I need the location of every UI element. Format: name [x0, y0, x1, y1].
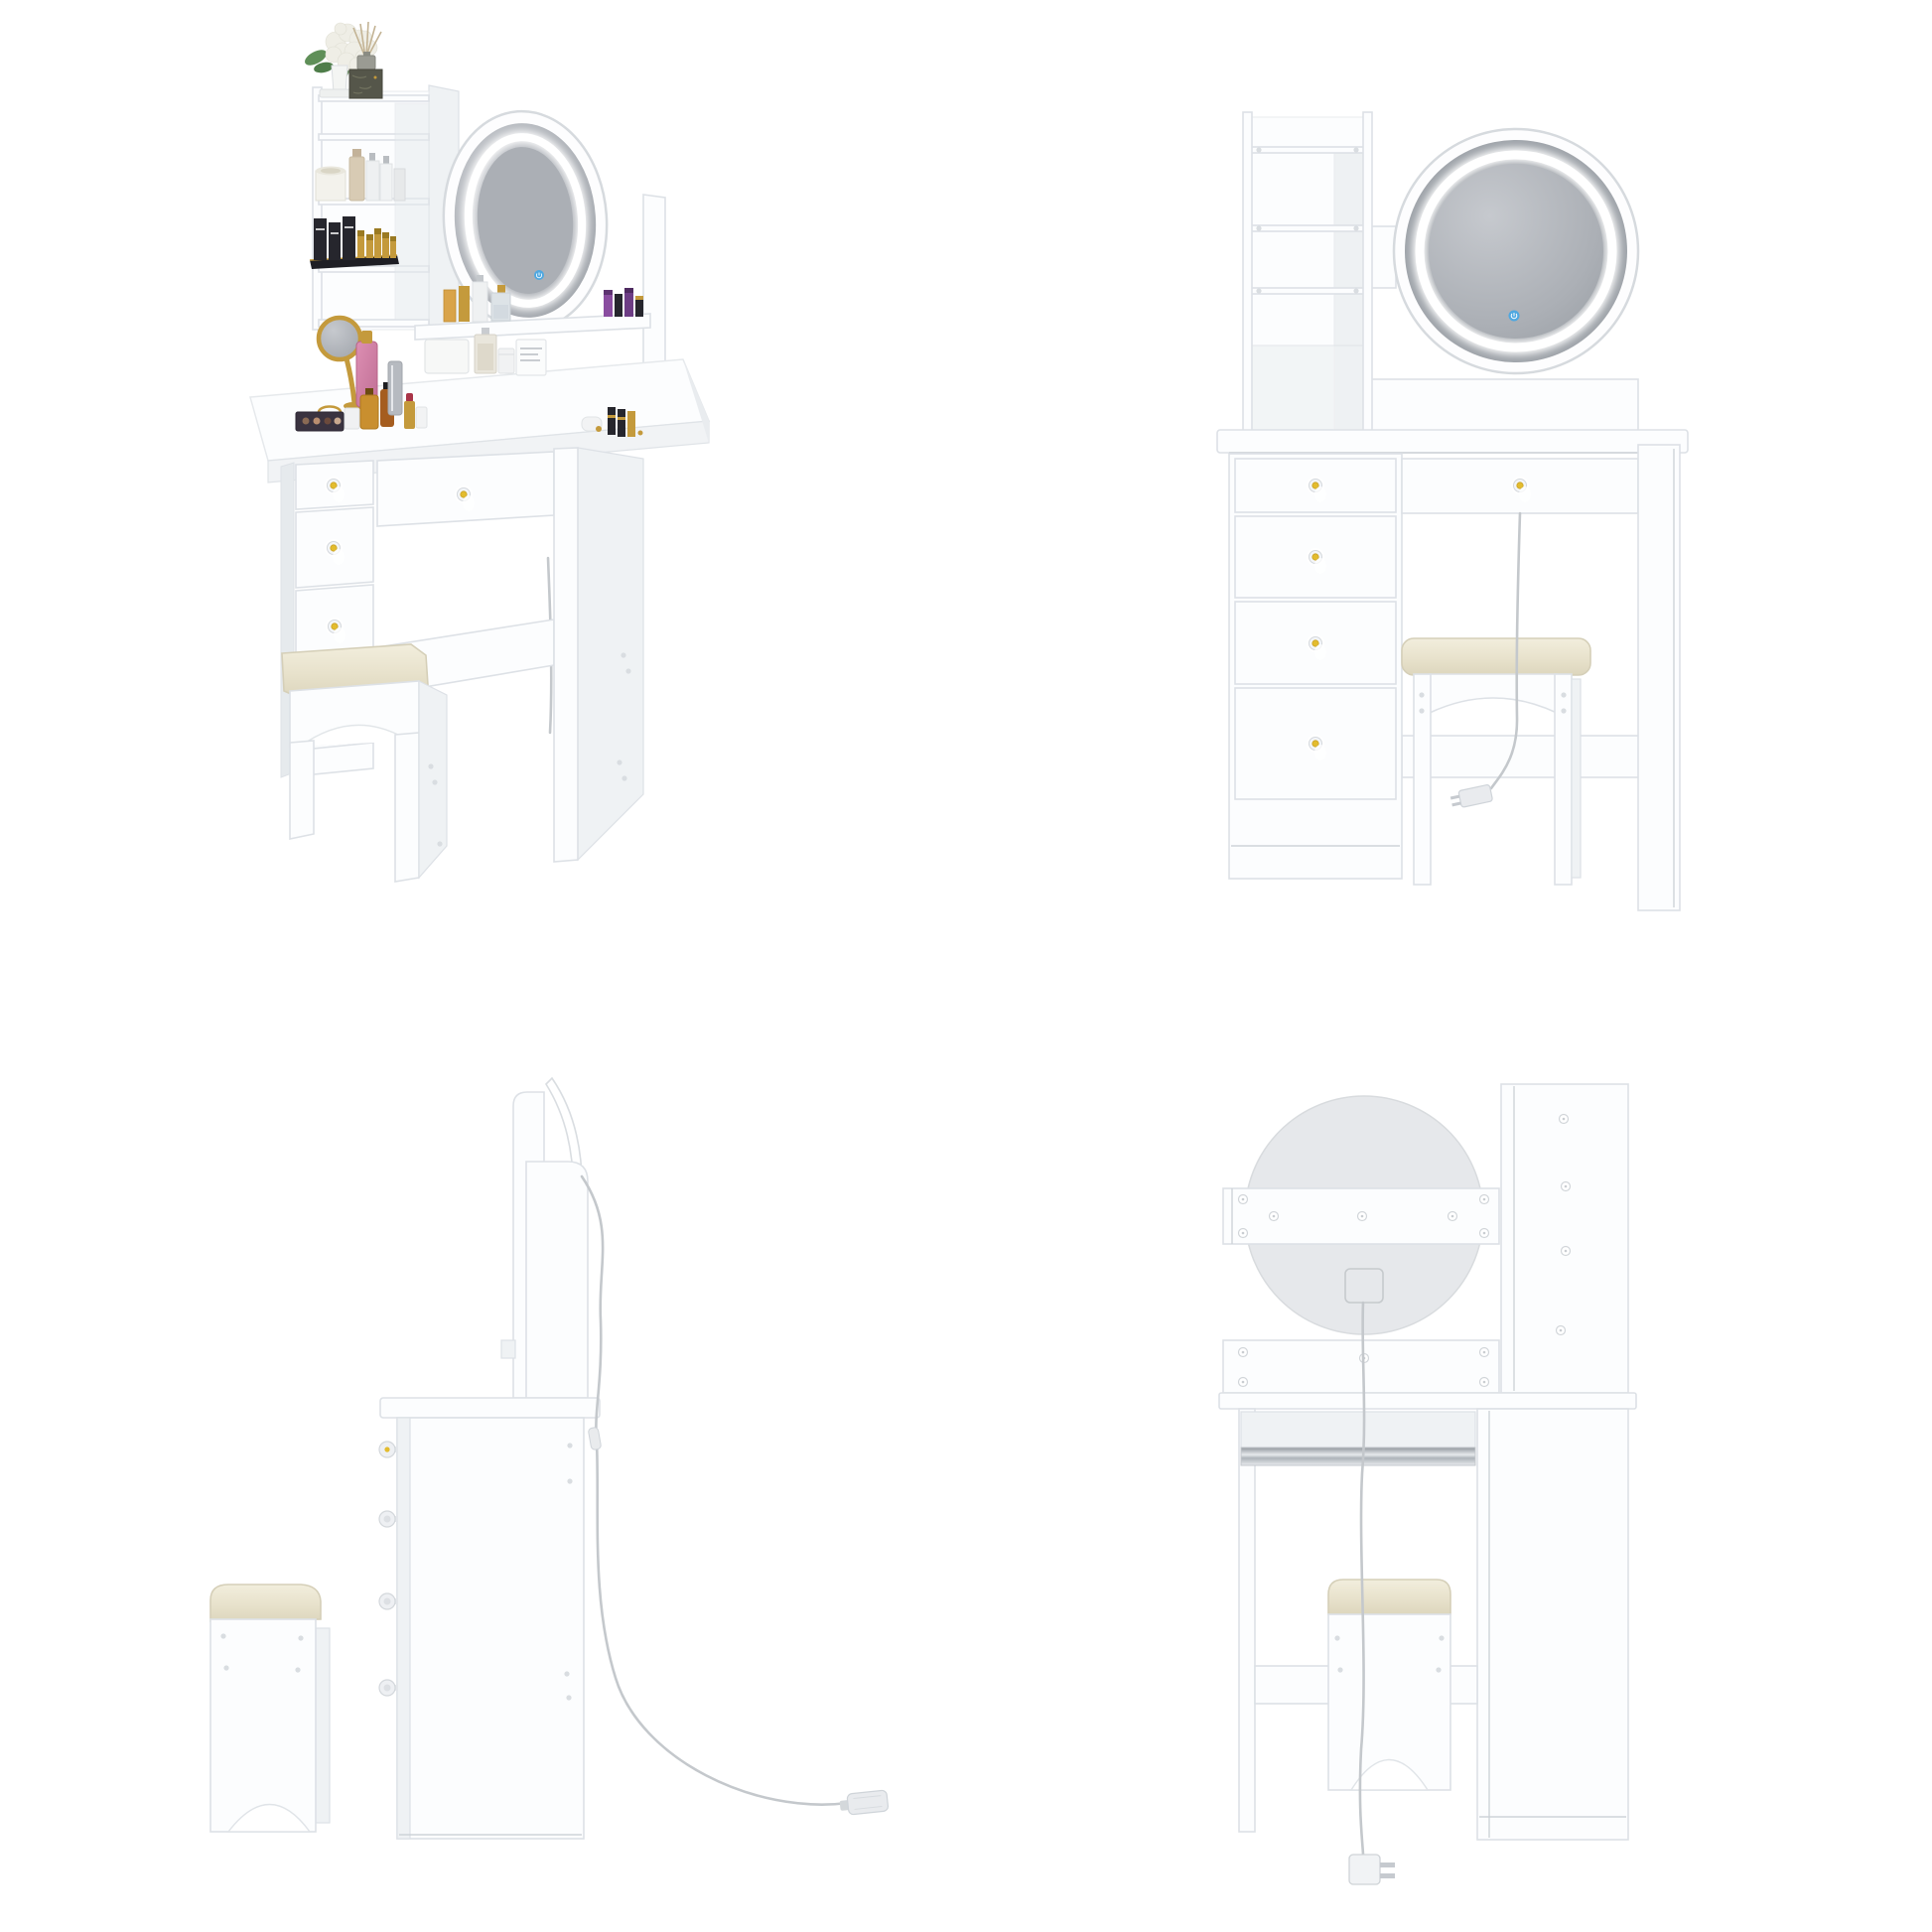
cream-jar — [498, 348, 514, 373]
vanity-4-views — [0, 0, 1932, 1932]
table-top — [380, 1398, 600, 1418]
back-rail-upper — [1223, 1188, 1499, 1244]
table-top — [1219, 1393, 1636, 1409]
stretcher-bar — [1402, 736, 1640, 777]
shelf-board — [1249, 225, 1366, 231]
mirror-side-support — [643, 195, 665, 389]
power-plug — [1449, 784, 1493, 809]
center-drawer — [377, 452, 554, 526]
stool-cushion — [1328, 1580, 1450, 1614]
perfume-clear — [475, 328, 496, 373]
touch-button — [534, 270, 544, 280]
led-mirror — [1394, 129, 1638, 373]
touch-button — [1509, 311, 1520, 322]
nail-polish-vials — [604, 288, 643, 317]
side-panel — [554, 448, 643, 862]
cord-connector — [588, 1427, 602, 1449]
power-plug — [839, 1790, 889, 1816]
view-back — [1219, 1084, 1636, 1884]
cosmetics-cluster — [296, 331, 427, 431]
knob-side — [379, 1680, 398, 1696]
drawer-back-panel — [1241, 1412, 1475, 1448]
junction-box — [1345, 1269, 1383, 1303]
left-drawer-bank — [1229, 454, 1402, 879]
mirror-bracket — [1370, 226, 1396, 288]
label-box — [516, 340, 546, 375]
view-side — [210, 1078, 889, 1839]
leg-panel — [1239, 1409, 1255, 1832]
side-knobs — [379, 1442, 398, 1696]
tower-back-panel — [1501, 1084, 1628, 1393]
product-image-grid — [0, 0, 1932, 1932]
stool-cushion — [210, 1585, 321, 1621]
shelf-tower-side — [526, 1162, 588, 1398]
view-front — [1217, 112, 1688, 910]
side-panel — [1638, 445, 1680, 910]
pedestal-back — [1477, 1409, 1628, 1840]
knob-side — [379, 1511, 398, 1527]
drawer-slide-rail — [1241, 1448, 1475, 1465]
view-perspective — [250, 22, 709, 882]
support-step — [501, 1340, 515, 1358]
stool-apron — [1430, 674, 1557, 713]
back-rail-lower — [1223, 1340, 1499, 1393]
power-cord — [582, 1176, 848, 1805]
stool-cushion — [1402, 638, 1590, 675]
knob-side — [379, 1442, 398, 1457]
knob-side — [379, 1593, 398, 1609]
stool — [210, 1585, 330, 1832]
power-plug — [1349, 1855, 1395, 1884]
candle — [316, 167, 345, 202]
shelf-tower — [313, 85, 459, 330]
shelf-board — [1249, 147, 1366, 153]
eyeshadow-palette — [296, 412, 344, 431]
table-top — [1217, 430, 1688, 453]
shelf-tower — [1243, 112, 1372, 444]
stool-back — [1328, 1580, 1450, 1790]
shelf-board — [1249, 288, 1366, 294]
cabinet-side — [397, 1418, 584, 1839]
tissue-box — [425, 340, 469, 373]
center-drawer — [1402, 459, 1638, 513]
flower-vase — [332, 66, 347, 92]
marble-box — [349, 69, 382, 98]
